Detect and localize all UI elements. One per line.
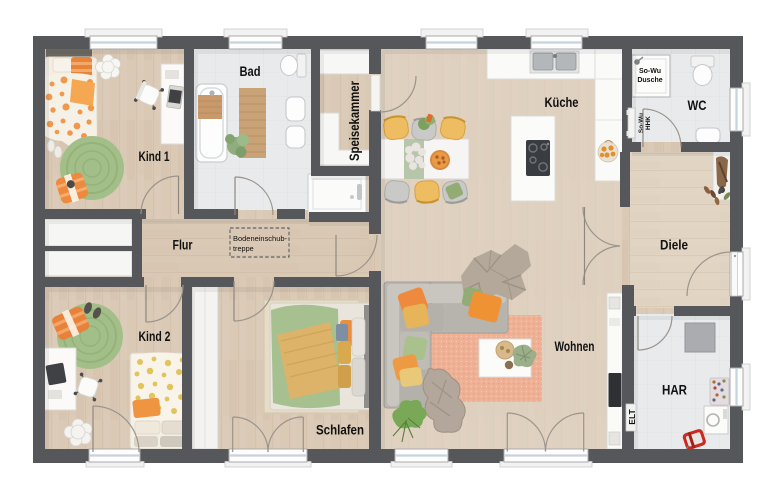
svg-text:Flur: Flur — [173, 238, 194, 253]
svg-text:Kind 2: Kind 2 — [139, 329, 171, 344]
svg-text:Bad: Bad — [240, 64, 261, 79]
svg-text:Wohnen: Wohnen — [555, 339, 595, 354]
svg-text:So-Wu: So-Wu — [639, 68, 661, 75]
svg-text:Speisekammer: Speisekammer — [347, 80, 362, 161]
svg-text:So-Wu: So-Wu — [638, 113, 645, 133]
svg-text:HAR: HAR — [662, 383, 687, 398]
svg-text:Dusche: Dusche — [637, 77, 662, 84]
svg-text:Bodeneinschub-: Bodeneinschub- — [233, 234, 288, 243]
svg-text:Küche: Küche — [545, 95, 579, 110]
svg-text:Kind 1: Kind 1 — [139, 149, 170, 164]
svg-text:ELT: ELT — [627, 408, 637, 424]
svg-text:Schlafen: Schlafen — [316, 423, 364, 438]
svg-text:WC: WC — [688, 98, 707, 113]
svg-text:HHK: HHK — [645, 116, 652, 130]
svg-text:treppe: treppe — [233, 244, 254, 253]
svg-text:Diele: Diele — [660, 238, 688, 253]
